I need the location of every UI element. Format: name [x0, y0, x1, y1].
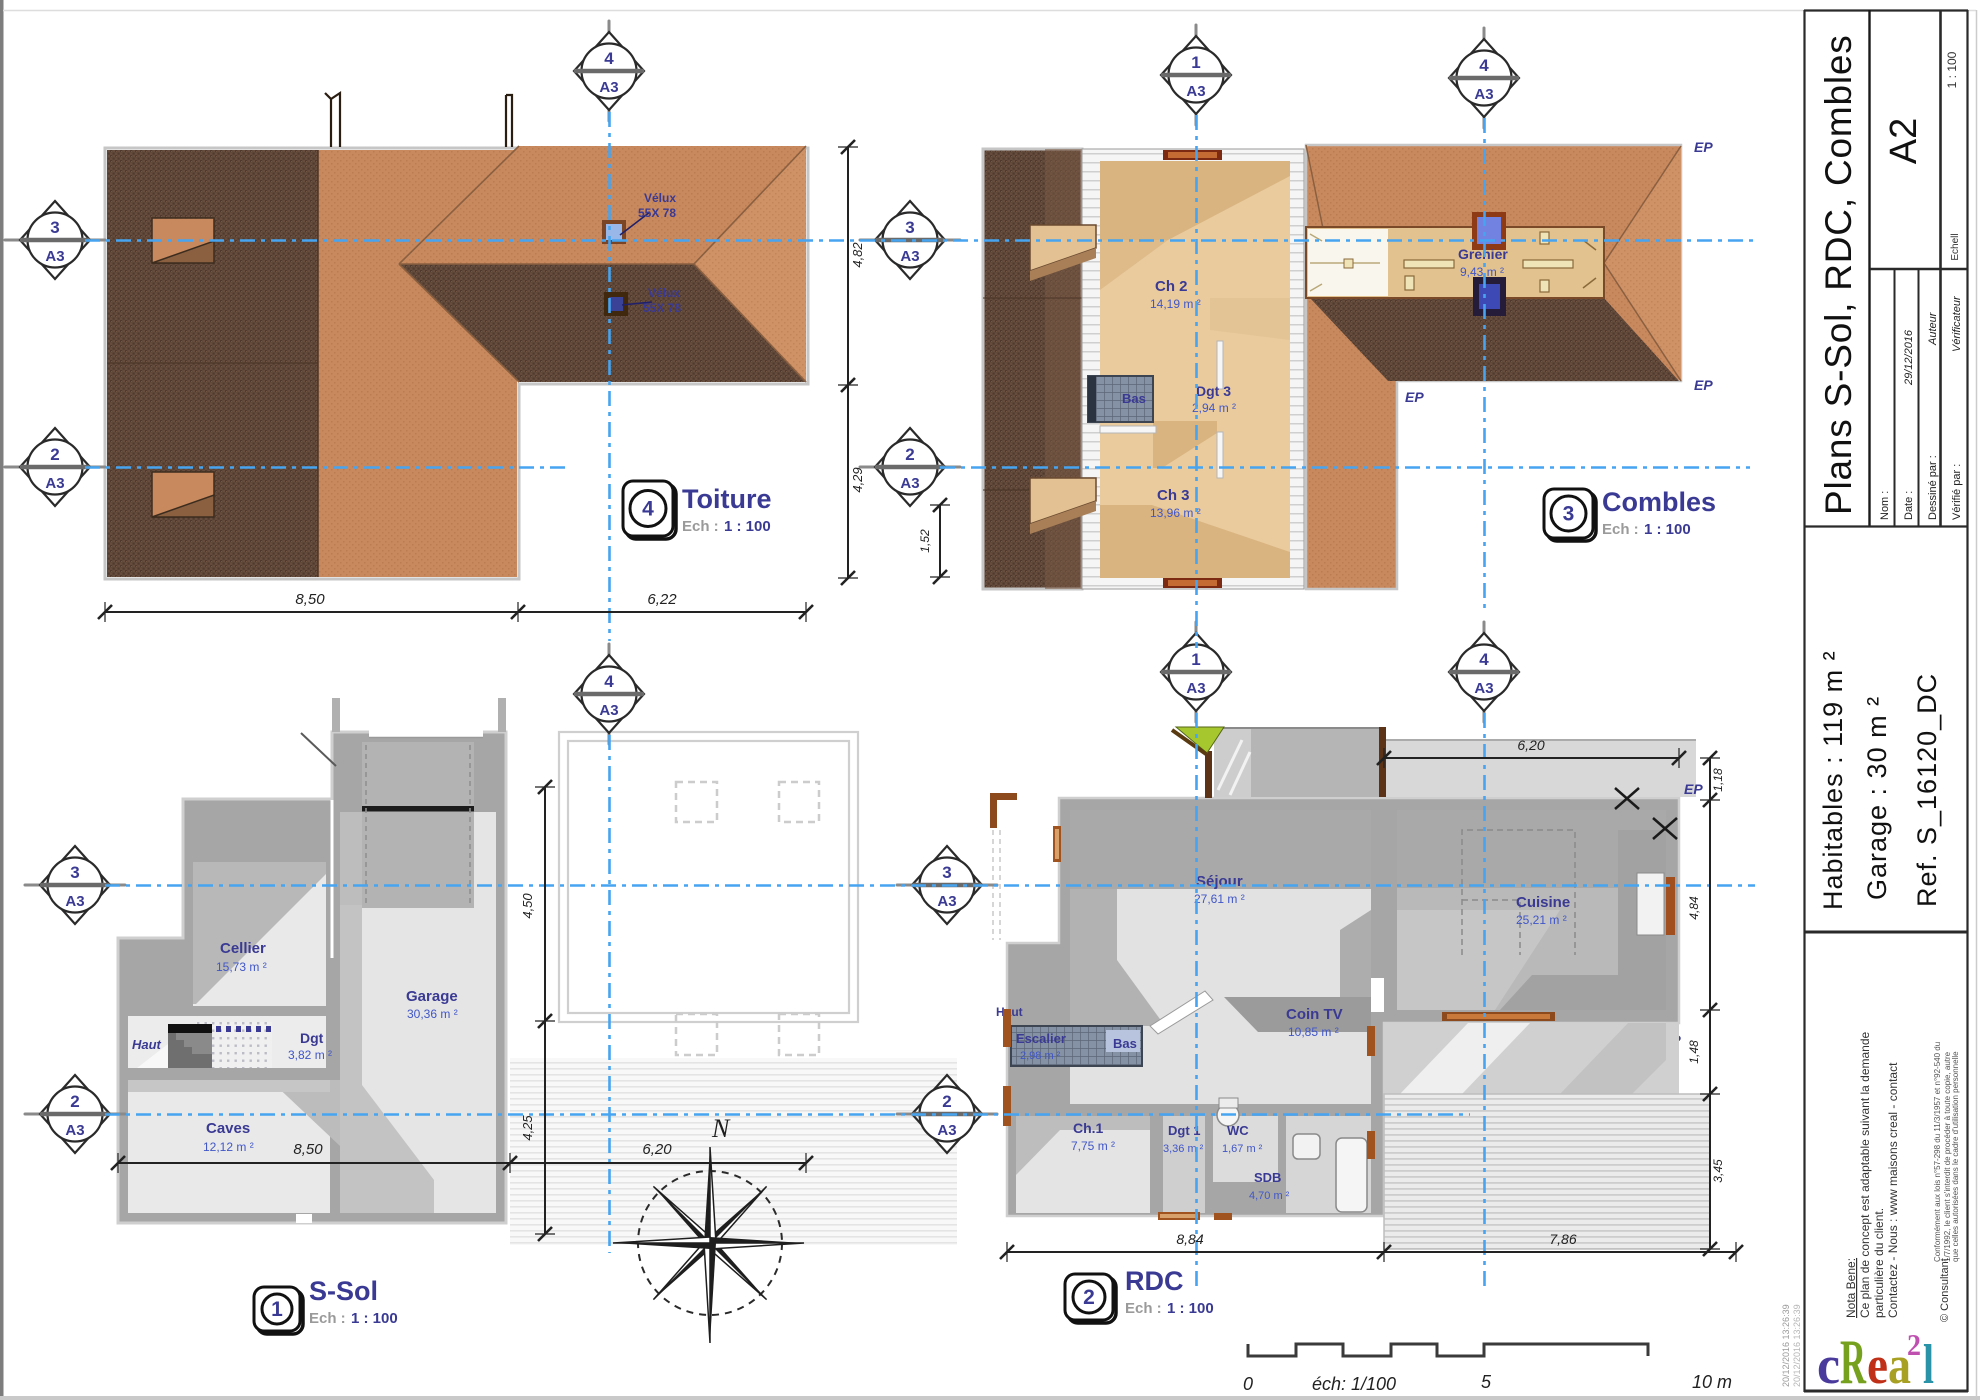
- svg-text:1 : 100: 1 : 100: [1167, 1300, 1214, 1317]
- svg-text:25,21 m ²: 25,21 m ²: [1516, 913, 1567, 927]
- svg-text:Garage : 30 m ²: Garage : 30 m ²: [1862, 696, 1892, 900]
- svg-text:2: 2: [1907, 1327, 1921, 1362]
- svg-text:9,43 m ²: 9,43 m ²: [1460, 265, 1504, 279]
- svg-text:Ref. S_16120_DC: Ref. S_16120_DC: [1912, 673, 1942, 907]
- svg-text:Vélux: Vélux: [644, 191, 676, 205]
- svg-text:Habitables : 119 m ²: Habitables : 119 m ²: [1818, 650, 1848, 910]
- svg-text:6,20: 6,20: [1517, 737, 1544, 753]
- svg-text:3: 3: [1563, 503, 1575, 526]
- svg-text:4: 4: [642, 498, 654, 521]
- svg-text:A2: A2: [1883, 118, 1925, 164]
- svg-text:Dgt 3: Dgt 3: [1196, 383, 1231, 399]
- svg-text:Conformément aux lois n°57-298: Conformément aux lois n°57-298 du 11/3/1…: [1933, 1042, 1942, 1262]
- svg-text:A3: A3: [1474, 86, 1493, 103]
- svg-text:Ch 2: Ch 2: [1155, 278, 1188, 295]
- svg-text:que celles autorisées dans le: que celles autorisées dans le cadre d'ut…: [1951, 1051, 1960, 1262]
- svg-text:1: 1: [271, 1298, 283, 1321]
- svg-text:6,22: 6,22: [647, 591, 677, 608]
- svg-text:8,50: 8,50: [293, 1141, 323, 1158]
- svg-text:Plans S-Sol, RDC, Combles: Plans S-Sol, RDC, Combles: [1818, 34, 1859, 515]
- svg-text:A3: A3: [65, 1122, 84, 1139]
- svg-text:A3: A3: [937, 1122, 956, 1139]
- svg-text:A3: A3: [45, 475, 64, 492]
- svg-text:12,12 m ²: 12,12 m ²: [203, 1140, 254, 1154]
- svg-text:27,61 m ²: 27,61 m ²: [1194, 892, 1245, 906]
- svg-text:5: 5: [1481, 1372, 1492, 1392]
- svg-text:3: 3: [942, 863, 951, 882]
- svg-text:R: R: [1840, 1326, 1866, 1397]
- svg-text:4: 4: [604, 672, 614, 691]
- svg-text:© Consultant: © Consultant: [1939, 1258, 1951, 1322]
- svg-text:1,48: 1,48: [1687, 1040, 1701, 1064]
- svg-text:A3: A3: [599, 702, 618, 719]
- svg-text:A3: A3: [900, 248, 919, 265]
- svg-text:Echell: Echell: [1950, 233, 1961, 260]
- svg-text:4,84: 4,84: [1687, 896, 1701, 920]
- svg-text:0: 0: [1243, 1374, 1253, 1394]
- svg-text:13,96 m ²: 13,96 m ²: [1150, 506, 1201, 520]
- svg-text:1 : 100: 1 : 100: [1644, 521, 1691, 538]
- svg-text:S-Sol: S-Sol: [309, 1276, 378, 1306]
- svg-text:e: e: [1867, 1335, 1888, 1395]
- svg-text:8,84: 8,84: [1176, 1231, 1203, 1247]
- svg-text:Séjour: Séjour: [1196, 873, 1243, 890]
- svg-text:Escalier: Escalier: [1016, 1031, 1066, 1046]
- svg-text:4,82: 4,82: [850, 242, 865, 268]
- svg-text:Date :: Date :: [1903, 491, 1915, 520]
- svg-text:Ch.1: Ch.1: [1073, 1120, 1104, 1136]
- svg-text:2: 2: [905, 445, 914, 464]
- svg-text:N: N: [711, 1114, 731, 1143]
- svg-text:Ce plan de concept est adaptab: Ce plan de concept est adaptable suivant…: [1858, 1031, 1872, 1318]
- svg-text:3: 3: [70, 863, 79, 882]
- svg-text:7,75 m ²: 7,75 m ²: [1071, 1139, 1115, 1153]
- svg-text:1,67 m ²: 1,67 m ²: [1222, 1143, 1263, 1155]
- svg-text:2: 2: [50, 445, 59, 464]
- svg-text:Caves: Caves: [206, 1120, 250, 1137]
- svg-text:EP: EP: [1694, 377, 1713, 393]
- svg-text:20/12/2016 13:26:39: 20/12/2016 13:26:39: [1781, 1304, 1791, 1387]
- svg-text:4: 4: [1479, 650, 1489, 669]
- svg-text:Ch 3: Ch 3: [1157, 487, 1190, 504]
- svg-text:20/12/2016 13:26:39: 20/12/2016 13:26:39: [1792, 1304, 1802, 1387]
- svg-text:A3: A3: [45, 248, 64, 265]
- svg-text:4,25: 4,25: [520, 1115, 535, 1141]
- svg-text:particulière du client.: particulière du client.: [1872, 1208, 1886, 1318]
- svg-text:A3: A3: [65, 893, 84, 910]
- svg-text:Toiture: Toiture: [682, 484, 772, 514]
- svg-text:3,82 m ²: 3,82 m ²: [288, 1048, 332, 1062]
- svg-text:2: 2: [1083, 1286, 1095, 1309]
- svg-text:A3: A3: [1186, 680, 1205, 697]
- svg-text:Nota Bene:: Nota Bene:: [1844, 1258, 1858, 1318]
- svg-text:Ech :: Ech :: [1125, 1300, 1162, 1317]
- svg-text:2: 2: [942, 1092, 951, 1111]
- svg-text:4,50: 4,50: [520, 893, 535, 919]
- svg-text:Nom :: Nom :: [1879, 491, 1891, 520]
- svg-text:Vérifié par :: Vérifié par :: [1951, 464, 1963, 520]
- svg-text:Coin TV: Coin TV: [1286, 1006, 1343, 1023]
- svg-text:EP: EP: [1684, 781, 1703, 797]
- svg-text:A3: A3: [599, 79, 618, 96]
- svg-text:4,70 m ²: 4,70 m ²: [1249, 1190, 1290, 1202]
- svg-text:Ech :: Ech :: [1602, 521, 1639, 538]
- svg-text:Ech :: Ech :: [309, 1310, 346, 1327]
- svg-text:Grenier: Grenier: [1458, 246, 1508, 262]
- svg-text:Haut: Haut: [132, 1037, 162, 1052]
- svg-text:3,45: 3,45: [1711, 1159, 1725, 1183]
- svg-text:15,73 m ²: 15,73 m ²: [216, 960, 267, 974]
- svg-text:4: 4: [1479, 56, 1489, 75]
- svg-text:A3: A3: [1186, 83, 1205, 100]
- svg-text:29/12/2016: 29/12/2016: [1903, 329, 1915, 386]
- svg-text:Ech :: Ech :: [682, 518, 719, 535]
- svg-text:2: 2: [70, 1092, 79, 1111]
- svg-text:Bas: Bas: [1113, 1036, 1137, 1051]
- svg-text:Dessiné par :: Dessiné par :: [1927, 455, 1939, 520]
- svg-text:l: l: [1923, 1334, 1934, 1396]
- svg-text:10,85 m ²: 10,85 m ²: [1288, 1025, 1339, 1039]
- svg-text:1 : 100: 1 : 100: [351, 1310, 398, 1327]
- svg-text:10 m: 10 m: [1692, 1372, 1732, 1392]
- svg-text:7,86: 7,86: [1549, 1231, 1576, 1247]
- svg-text:Auteur: Auteur: [1927, 311, 1939, 346]
- svg-text:55X 78: 55X 78: [638, 206, 676, 220]
- svg-text:55X 78: 55X 78: [643, 301, 681, 315]
- svg-text:Vélux: Vélux: [648, 286, 680, 300]
- svg-text:1 : 100: 1 : 100: [724, 518, 771, 535]
- svg-text:1: 1: [1191, 53, 1200, 72]
- svg-text:3: 3: [50, 218, 59, 237]
- svg-text:A3: A3: [900, 475, 919, 492]
- svg-text:Vérificateur: Vérificateur: [1951, 295, 1963, 352]
- svg-text:Contactez - Nous : www maisons: Contactez - Nous : www maisons creal - c…: [1886, 1062, 1900, 1318]
- svg-text:3: 3: [905, 218, 914, 237]
- svg-text:1: 1: [1191, 650, 1200, 669]
- svg-text:c: c: [1817, 1335, 1840, 1395]
- svg-text:A3: A3: [1474, 680, 1493, 697]
- svg-text:SDB: SDB: [1254, 1170, 1281, 1185]
- svg-text:4: 4: [604, 49, 614, 68]
- svg-text:Combles: Combles: [1602, 487, 1716, 517]
- svg-text:6,20: 6,20: [642, 1141, 672, 1158]
- svg-text:8,50: 8,50: [295, 591, 325, 608]
- svg-text:Bas: Bas: [1122, 391, 1146, 406]
- svg-text:EP: EP: [1694, 139, 1713, 155]
- svg-text:Garage: Garage: [406, 988, 458, 1005]
- svg-text:WC: WC: [1227, 1123, 1249, 1138]
- svg-text:RDC: RDC: [1125, 1266, 1184, 1296]
- svg-text:4,29: 4,29: [850, 467, 865, 492]
- svg-text:EP: EP: [1405, 389, 1424, 405]
- svg-text:éch: 1/100: éch: 1/100: [1312, 1374, 1396, 1394]
- svg-text:Dgt: Dgt: [300, 1030, 324, 1046]
- svg-text:30,36 m ²: 30,36 m ²: [407, 1007, 458, 1021]
- svg-text:Cuisine: Cuisine: [1516, 894, 1570, 911]
- svg-text:2,94 m ²: 2,94 m ²: [1192, 401, 1236, 415]
- svg-text:1 : 100: 1 : 100: [1945, 51, 1959, 88]
- svg-text:2,98 m ²: 2,98 m ²: [1020, 1050, 1061, 1062]
- svg-text:Cellier: Cellier: [220, 940, 266, 957]
- svg-text:1,52: 1,52: [918, 529, 932, 553]
- svg-text:14,19 m ²: 14,19 m ²: [1150, 297, 1201, 311]
- svg-text:A3: A3: [937, 893, 956, 910]
- svg-text:1,18: 1,18: [1711, 768, 1725, 792]
